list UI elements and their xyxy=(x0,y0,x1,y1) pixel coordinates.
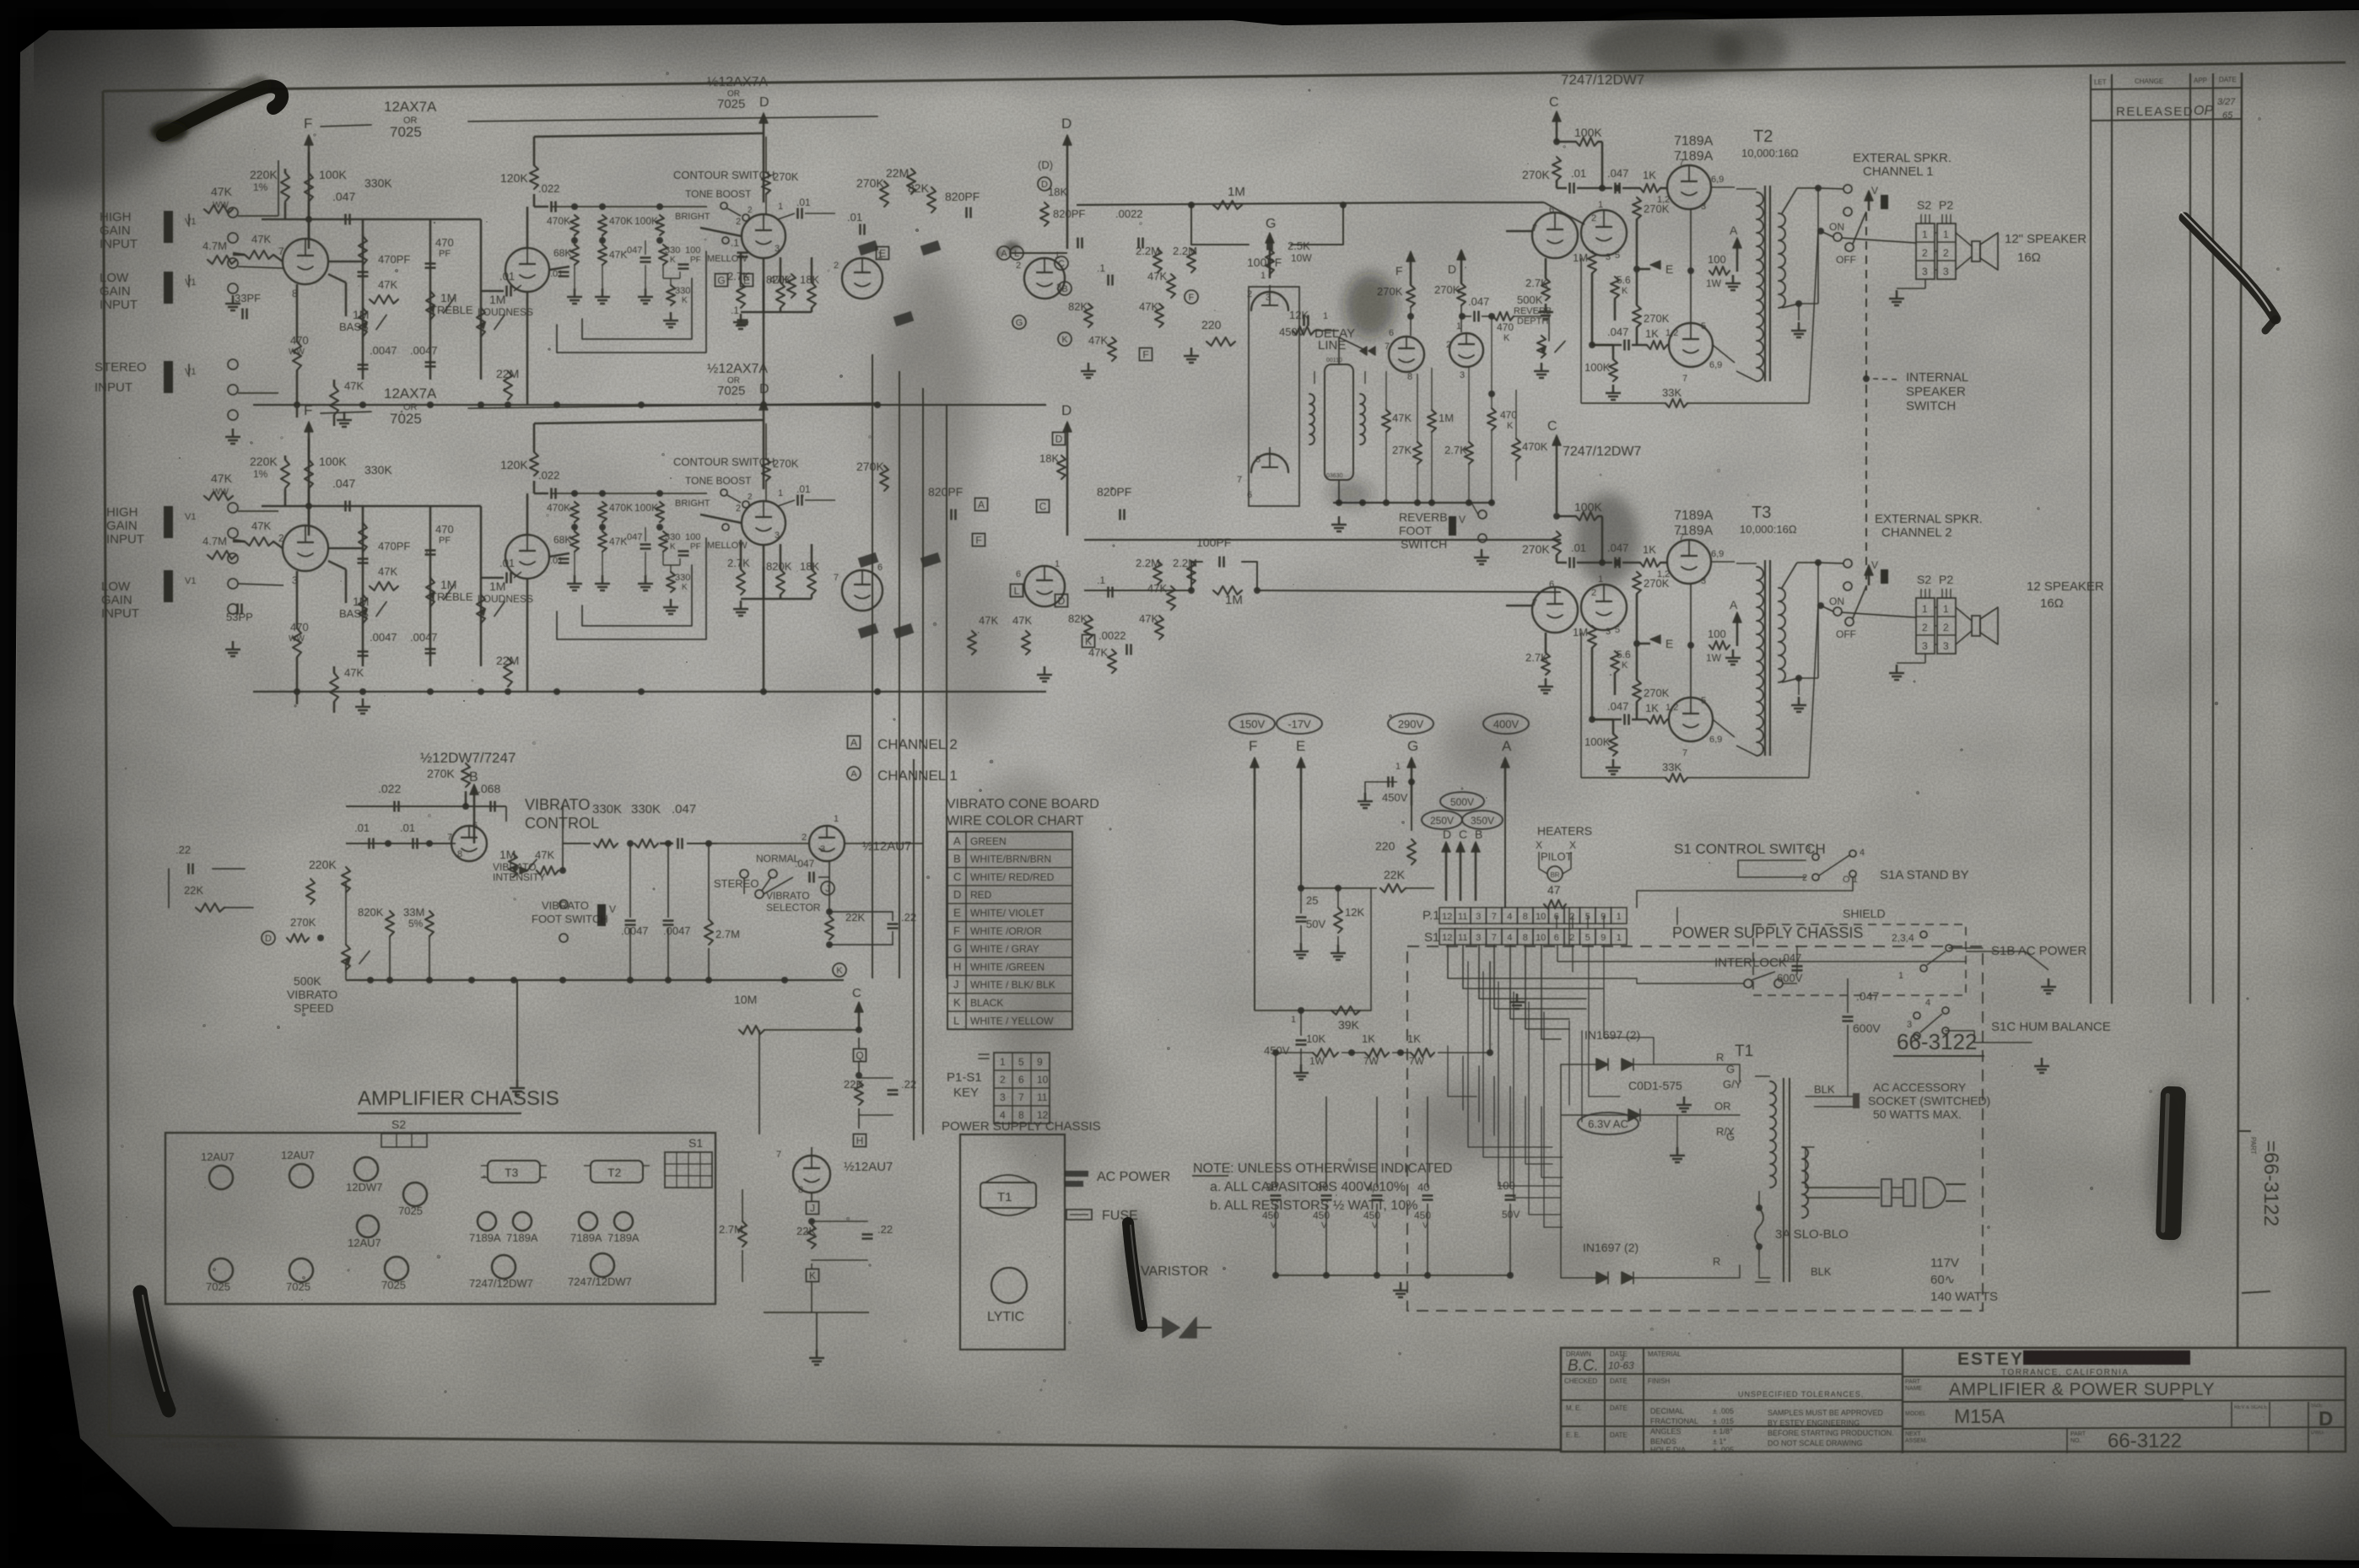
svg-text:2: 2 xyxy=(736,504,741,514)
svg-text:GAIN: GAIN xyxy=(100,284,131,299)
svg-text:PART: PART xyxy=(2070,1431,2086,1437)
svg-text:LOW: LOW xyxy=(100,271,129,285)
svg-text:7247/12DW7: 7247/12DW7 xyxy=(568,1275,632,1288)
svg-text:270K: 270K xyxy=(1522,542,1550,556)
svg-text:150V: 150V xyxy=(1239,718,1266,730)
svg-text:.047: .047 xyxy=(795,858,815,870)
svg-text:APP: APP xyxy=(2194,77,2207,84)
svg-text:PF: PF xyxy=(690,256,701,265)
svg-text:820PF: 820PF xyxy=(1053,207,1085,220)
svg-text:47K: 47K xyxy=(211,185,233,198)
svg-text:OR: OR xyxy=(1714,1100,1731,1113)
svg-text:1: 1 xyxy=(778,202,783,212)
svg-text:GAIN: GAIN xyxy=(106,519,138,533)
svg-text:F: F xyxy=(1142,349,1148,361)
svg-text:T3: T3 xyxy=(505,1166,519,1179)
svg-text:2: 2 xyxy=(1016,261,1021,271)
svg-text:± .005: ± .005 xyxy=(1713,1446,1734,1454)
svg-text:HIGH: HIGH xyxy=(106,505,138,520)
svg-text:V: V xyxy=(1459,514,1466,525)
svg-text:3: 3 xyxy=(1907,1020,1912,1030)
svg-text:.22: .22 xyxy=(175,843,191,856)
svg-text:100K: 100K xyxy=(1574,500,1602,514)
svg-text:12AU7: 12AU7 xyxy=(348,1237,381,1249)
svg-text:100K: 100K xyxy=(1584,736,1611,748)
svg-text:7025: 7025 xyxy=(381,1279,406,1291)
svg-text:(D): (D) xyxy=(1038,159,1053,171)
svg-text:100: 100 xyxy=(685,532,700,542)
svg-text:22M: 22M xyxy=(886,166,909,180)
svg-text:FOOT: FOOT xyxy=(1399,524,1432,537)
svg-text:D: D xyxy=(759,95,769,110)
svg-text:820PF: 820PF xyxy=(1097,485,1131,498)
svg-text:25: 25 xyxy=(1306,894,1318,907)
svg-text:B: B xyxy=(1061,284,1067,294)
svg-text:2: 2 xyxy=(736,217,741,227)
svg-text:1K: 1K xyxy=(1407,1032,1421,1045)
svg-text:T2: T2 xyxy=(1753,127,1773,146)
svg-text:100K: 100K xyxy=(319,455,347,468)
svg-text:.047: .047 xyxy=(1607,326,1628,338)
svg-text:PF: PF xyxy=(690,542,701,552)
svg-text:1W: 1W xyxy=(1706,277,1722,289)
svg-text:S2: S2 xyxy=(1917,573,1931,586)
svg-text:ESTEY: ESTEY xyxy=(1957,1350,2024,1369)
svg-text:10K: 10K xyxy=(1306,1032,1325,1045)
svg-text:L: L xyxy=(1014,585,1020,597)
svg-text:12K: 12K xyxy=(1345,906,1364,919)
svg-text:.1: .1 xyxy=(731,237,739,249)
svg-text:O 1: O 1 xyxy=(1843,875,1858,885)
svg-text:18K: 18K xyxy=(1039,452,1059,465)
svg-text:SELECTOR: SELECTOR xyxy=(766,902,821,913)
svg-text:H: H xyxy=(856,1135,864,1147)
svg-text:± 1°: ± 1° xyxy=(1713,1437,1726,1446)
svg-text:3: 3 xyxy=(1620,1354,1624,1362)
svg-text:T1: T1 xyxy=(997,1190,1012,1204)
svg-text:330K: 330K xyxy=(364,463,392,477)
svg-text:2.5K: 2.5K xyxy=(1287,240,1310,252)
svg-text:220: 220 xyxy=(1201,318,1222,331)
svg-text:POWER SUPPLY CHASSIS: POWER SUPPLY CHASSIS xyxy=(942,1119,1101,1134)
svg-text:CONTOUR SWITCH: CONTOUR SWITCH xyxy=(673,169,775,181)
svg-text:220K: 220K xyxy=(250,455,278,468)
svg-text:C: C xyxy=(953,870,961,883)
svg-text:3: 3 xyxy=(1606,252,1611,262)
svg-text:1: 1 xyxy=(1922,603,1928,615)
svg-text:STEREO: STEREO xyxy=(94,360,147,374)
svg-text:7: 7 xyxy=(1532,598,1537,608)
svg-text:3: 3 xyxy=(1000,1091,1006,1103)
svg-text:600V: 600V xyxy=(1853,1021,1881,1035)
svg-text:G: G xyxy=(1266,217,1276,231)
svg-text:F: F xyxy=(975,535,981,547)
svg-text:12" SPEAKER: 12" SPEAKER xyxy=(2005,232,2086,246)
svg-text:K: K xyxy=(1622,660,1628,671)
svg-text:7: 7 xyxy=(776,1150,781,1160)
svg-text:2: 2 xyxy=(748,493,753,502)
svg-text:10W: 10W xyxy=(1291,252,1312,264)
svg-text:R: R xyxy=(1716,1051,1724,1064)
svg-text:100: 100 xyxy=(685,245,700,256)
svg-text:9: 9 xyxy=(1601,933,1606,943)
svg-text:CONTROL: CONTROL xyxy=(525,815,599,832)
svg-text:K: K xyxy=(1503,333,1510,343)
svg-text:B: B xyxy=(953,853,961,865)
svg-text:B: B xyxy=(1475,827,1482,841)
svg-text:40: 40 xyxy=(1417,1181,1429,1194)
svg-text:11: 11 xyxy=(1037,1091,1048,1103)
svg-text:D: D xyxy=(759,382,769,396)
svg-text:68K: 68K xyxy=(553,534,571,546)
svg-text:6,9: 6,9 xyxy=(1711,175,1724,185)
svg-text:47K: 47K xyxy=(1088,334,1108,347)
svg-text:.047: .047 xyxy=(332,190,355,203)
svg-text:12AX7A: 12AX7A xyxy=(384,99,437,115)
svg-text:.1: .1 xyxy=(1097,262,1105,274)
svg-text:S2: S2 xyxy=(1917,198,1931,212)
svg-text:BLK: BLK xyxy=(1814,1083,1835,1096)
svg-text:V1: V1 xyxy=(185,512,196,522)
svg-text:1: 1 xyxy=(1898,971,1903,981)
svg-text:V1: V1 xyxy=(185,217,196,227)
svg-text:SAMPLES MUST BE APPROVED: SAMPLES MUST BE APPROVED xyxy=(1768,1409,1883,1417)
svg-text:GAIN: GAIN xyxy=(101,593,132,607)
svg-text:.047: .047 xyxy=(624,532,642,542)
svg-text:WHITE / YELLOW: WHITE / YELLOW xyxy=(970,1015,1054,1026)
svg-text:39K: 39K xyxy=(1338,1018,1360,1032)
svg-text:S2: S2 xyxy=(391,1118,406,1131)
svg-text:470PF: 470PF xyxy=(378,540,410,552)
svg-text:IN1697 (2): IN1697 (2) xyxy=(1584,1028,1640,1042)
svg-text:7025: 7025 xyxy=(390,411,422,427)
svg-text:OFF: OFF xyxy=(1836,628,1856,640)
svg-text:7: 7 xyxy=(1532,224,1537,234)
svg-text:WIRE COLOR CHART: WIRE COLOR CHART xyxy=(947,814,1084,828)
svg-text:AC POWER: AC POWER xyxy=(1097,1170,1170,1184)
svg-text:DATE: DATE xyxy=(2219,76,2237,84)
svg-text:2: 2 xyxy=(834,261,839,271)
svg-text:100K: 100K xyxy=(319,168,347,181)
svg-text:NOTE: NOTE xyxy=(1193,1161,1230,1176)
svg-text:7: 7 xyxy=(1492,933,1497,943)
svg-text:18K: 18K xyxy=(800,560,819,573)
svg-text:a. ALL CAPASITORS 400V, 10%: a. ALL CAPASITORS 400V, 10% xyxy=(1210,1180,1406,1194)
svg-text:NO.: NO. xyxy=(2070,1438,2081,1444)
svg-text:.047: .047 xyxy=(1607,700,1628,713)
svg-text:470: 470 xyxy=(435,236,454,249)
svg-text:AMPLIFIER CHASSIS: AMPLIFIER CHASSIS xyxy=(358,1087,559,1110)
svg-text:270K: 270K xyxy=(856,176,884,190)
svg-text:TORRANCE, CALIFORNIA: TORRANCE, CALIFORNIA xyxy=(2001,1368,2130,1377)
svg-text:3: 3 xyxy=(775,531,780,541)
svg-text:TREBLE: TREBLE xyxy=(430,304,473,316)
svg-text:1,2: 1,2 xyxy=(1665,328,1678,338)
svg-text:LOUDNESS: LOUDNESS xyxy=(478,593,533,605)
svg-text:3: 3 xyxy=(1460,370,1465,380)
svg-text:VIBRATO: VIBRATO xyxy=(766,890,810,902)
svg-text:C: C xyxy=(1459,827,1467,841)
svg-text:IN1697 (2): IN1697 (2) xyxy=(1583,1241,1638,1254)
svg-text:6,9: 6,9 xyxy=(1709,735,1722,745)
svg-text:DATE: DATE xyxy=(1610,1431,1628,1439)
svg-text:K: K xyxy=(953,996,961,1009)
svg-text:10,000:16Ω: 10,000:16Ω xyxy=(1741,147,1799,159)
svg-text:WHITE /GREEN: WHITE /GREEN xyxy=(970,961,1045,973)
svg-text:SOCKET (SWITCHED): SOCKET (SWITCHED) xyxy=(1868,1094,1990,1107)
svg-text:T1: T1 xyxy=(1735,1043,1753,1060)
svg-text:1%: 1% xyxy=(253,468,268,480)
svg-text:G: G xyxy=(953,942,962,955)
svg-text:8: 8 xyxy=(457,849,462,859)
svg-text:K: K xyxy=(682,296,688,305)
svg-text:2.7K: 2.7K xyxy=(727,557,750,569)
svg-text:270K: 270K xyxy=(1644,687,1670,699)
svg-text:7247/12DW7: 7247/12DW7 xyxy=(1563,445,1641,459)
svg-text:6: 6 xyxy=(1549,205,1554,215)
svg-text:.047: .047 xyxy=(672,802,696,816)
svg-text:500K: 500K xyxy=(294,974,321,988)
svg-text:2: 2 xyxy=(802,832,807,843)
svg-text:DIETZGEN 14DH DURAVEL: DIETZGEN 14DH DURAVEL xyxy=(162,1443,238,1449)
svg-text:.047: .047 xyxy=(332,477,355,490)
svg-text:.022: .022 xyxy=(538,182,559,195)
svg-text:B.C.: B.C. xyxy=(1568,1357,1599,1375)
svg-text:SWITCH: SWITCH xyxy=(1401,537,1447,551)
svg-text:SPEED: SPEED xyxy=(294,1001,333,1015)
svg-text:00110: 00110 xyxy=(1326,358,1342,364)
svg-text:PF: PF xyxy=(439,536,451,546)
svg-text:.0047: .0047 xyxy=(370,631,397,644)
svg-text:117V: 117V xyxy=(1930,1256,1959,1270)
svg-text:4: 4 xyxy=(1860,848,1865,858)
svg-text:.01: .01 xyxy=(847,211,862,224)
svg-text:EXTERNAL SPKR.: EXTERNAL SPKR. xyxy=(1875,512,1983,526)
svg-text:FINISH: FINISH xyxy=(1648,1377,1670,1385)
svg-text:EXTERAL SPKR.: EXTERAL SPKR. xyxy=(1853,151,1951,165)
svg-text:1,2: 1,2 xyxy=(1665,703,1678,713)
svg-text:± .005: ± .005 xyxy=(1713,1407,1734,1415)
svg-text:120K: 120K xyxy=(500,458,528,471)
svg-text:7189A: 7189A xyxy=(1674,149,1714,164)
svg-text:22K: 22K xyxy=(845,911,865,924)
svg-text:22K: 22K xyxy=(184,884,203,897)
svg-text:3: 3 xyxy=(1943,640,1949,652)
svg-text:± 1/8°: ± 1/8° xyxy=(1713,1427,1733,1436)
svg-text:2: 2 xyxy=(1802,873,1807,883)
svg-text:V1: V1 xyxy=(185,367,196,377)
svg-text:6: 6 xyxy=(1549,579,1554,590)
svg-text:GREEN: GREEN xyxy=(970,835,1007,847)
svg-text:± .015: ± .015 xyxy=(1713,1417,1734,1425)
svg-text:270K: 270K xyxy=(773,457,799,470)
svg-text:.0047: .0047 xyxy=(663,924,691,937)
svg-text:E: E xyxy=(1665,262,1673,276)
svg-text:500V: 500V xyxy=(1450,796,1474,808)
svg-text:1M: 1M xyxy=(489,293,505,306)
svg-text:6: 6 xyxy=(472,821,478,831)
svg-text:BEFORE STARTING PRODUCTION.: BEFORE STARTING PRODUCTION. xyxy=(1768,1429,1894,1437)
svg-text:47K: 47K xyxy=(378,278,397,291)
svg-text:1K: 1K xyxy=(1362,1032,1375,1045)
svg-text:½12AU7: ½12AU7 xyxy=(844,1160,893,1174)
svg-text:C: C xyxy=(1039,501,1047,513)
svg-text:.22: .22 xyxy=(901,911,916,924)
svg-text:.022: .022 xyxy=(378,782,401,795)
svg-text:VIBRATO: VIBRATO xyxy=(525,796,590,813)
svg-text:470K: 470K xyxy=(1522,440,1548,453)
svg-text:G: G xyxy=(1016,318,1023,328)
svg-text:270K: 270K xyxy=(856,460,884,473)
svg-text:1: 1 xyxy=(1055,559,1060,569)
svg-text:400V: 400V xyxy=(1493,718,1520,730)
svg-text:03630: 03630 xyxy=(1326,473,1343,479)
svg-text:1: 1 xyxy=(1395,762,1401,772)
svg-text:100K: 100K xyxy=(634,215,658,227)
svg-text:2: 2 xyxy=(1922,622,1928,633)
svg-text:P1-S1: P1-S1 xyxy=(947,1070,982,1085)
svg-text:BY ESTEY ENGINEERING: BY ESTEY ENGINEERING xyxy=(1768,1419,1860,1427)
svg-text:47K: 47K xyxy=(344,666,364,679)
svg-text:K: K xyxy=(836,966,843,976)
svg-text:F: F xyxy=(1249,738,1257,754)
svg-text:6.3V AC: 6.3V AC xyxy=(1588,1118,1628,1130)
svg-text:TREBLE: TREBLE xyxy=(430,590,473,603)
svg-text:1M: 1M xyxy=(1573,251,1588,264)
svg-text:5: 5 xyxy=(1615,625,1620,635)
svg-text:A: A xyxy=(850,737,857,749)
svg-text:2,3,4: 2,3,4 xyxy=(1892,932,1914,944)
svg-text:INTERNAL: INTERNAL xyxy=(1906,370,1968,385)
svg-text:MATERIAL: MATERIAL xyxy=(1648,1350,1682,1358)
svg-text:1K: 1K xyxy=(1643,543,1656,556)
svg-text:.047: .047 xyxy=(1856,989,1879,1003)
svg-text:470K: 470K xyxy=(609,215,633,227)
svg-text:3A SLO-BLO: 3A SLO-BLO xyxy=(1775,1227,1849,1242)
svg-text:INPUT: INPUT xyxy=(101,606,139,621)
svg-text:2: 2 xyxy=(278,532,284,544)
svg-text:12AU7: 12AU7 xyxy=(201,1150,235,1163)
svg-text:270K: 270K xyxy=(1644,577,1670,590)
svg-text:V: V xyxy=(1871,185,1878,197)
svg-text:470: 470 xyxy=(1497,321,1514,333)
svg-text:1W: 1W xyxy=(1706,652,1722,664)
svg-text:.01: .01 xyxy=(354,822,370,834)
svg-text:DWG.: DWG. xyxy=(2311,1431,2325,1436)
svg-text:-17V: -17V xyxy=(1287,718,1311,730)
svg-text:470: 470 xyxy=(1500,409,1517,421)
svg-text:C0D1-575: C0D1-575 xyxy=(1628,1079,1682,1092)
svg-text:7025: 7025 xyxy=(206,1280,230,1293)
svg-text:820K: 820K xyxy=(358,906,384,919)
svg-text:270K: 270K xyxy=(773,170,799,183)
svg-text:DATE: DATE xyxy=(1610,1404,1628,1412)
svg-text:REV & SCALE: REV & SCALE xyxy=(2234,1405,2267,1410)
svg-text:LOUDNESS: LOUDNESS xyxy=(478,306,533,318)
svg-text:8: 8 xyxy=(1255,455,1260,465)
svg-text:.047: .047 xyxy=(1607,167,1628,180)
svg-text:6: 6 xyxy=(1554,933,1559,943)
svg-text:220: 220 xyxy=(1375,839,1395,853)
svg-text:ASSEM.: ASSEM. xyxy=(1905,1438,1928,1444)
svg-text:600V: 600V xyxy=(1777,972,1803,984)
svg-text:BLACK: BLACK xyxy=(970,997,1003,1009)
svg-text:100: 100 xyxy=(1708,628,1726,640)
svg-text:WHITE /OR/OR: WHITE /OR/OR xyxy=(970,925,1042,937)
svg-text:1: 1 xyxy=(1456,321,1461,331)
svg-text:POWER SUPPLY CHASSIS: POWER SUPPLY CHASSIS xyxy=(1672,924,1863,941)
svg-text:3: 3 xyxy=(1266,293,1271,303)
svg-text:66-3122: 66-3122 xyxy=(2108,1430,2182,1452)
svg-text:68K: 68K xyxy=(553,247,571,259)
svg-text:1: 1 xyxy=(1323,311,1328,321)
svg-text:.047: .047 xyxy=(1607,542,1628,554)
svg-text:A: A xyxy=(850,769,857,779)
svg-text:6: 6 xyxy=(877,563,883,573)
svg-text:.01: .01 xyxy=(796,197,811,208)
svg-text:D: D xyxy=(953,888,961,901)
svg-text:11: 11 xyxy=(1458,912,1467,922)
svg-text:VIBRATO CONE BOARD: VIBRATO CONE BOARD xyxy=(947,797,1099,811)
svg-text:9: 9 xyxy=(1037,1056,1043,1068)
svg-text:220K: 220K xyxy=(309,858,337,871)
svg-text:M15A: M15A xyxy=(1954,1405,2005,1427)
svg-text:9: 9 xyxy=(1601,912,1606,922)
svg-text:INPUT: INPUT xyxy=(100,298,138,312)
svg-text:47K: 47K xyxy=(378,565,397,578)
svg-text:CHANNEL 1: CHANNEL 1 xyxy=(877,768,958,784)
svg-text:12AU7: 12AU7 xyxy=(281,1149,315,1161)
svg-text:V: V xyxy=(1871,559,1878,571)
svg-text:7189A: 7189A xyxy=(469,1231,501,1244)
svg-text:2: 2 xyxy=(1247,289,1252,299)
svg-text:BR: BR xyxy=(1550,871,1559,879)
svg-text:330K: 330K xyxy=(631,802,661,816)
svg-text:12: 12 xyxy=(1442,912,1452,922)
svg-text:7189A: 7189A xyxy=(1674,524,1714,538)
svg-text:E: E xyxy=(953,907,961,919)
svg-text:47K: 47K xyxy=(251,233,271,245)
svg-text:A: A xyxy=(978,499,985,511)
svg-text:330K: 330K xyxy=(364,176,392,190)
svg-text:1%: 1% xyxy=(253,181,268,193)
svg-text:OFF: OFF xyxy=(1836,254,1856,266)
svg-text:.047: .047 xyxy=(624,245,642,256)
svg-text:100PF: 100PF xyxy=(1196,536,1231,549)
svg-text:D: D xyxy=(1055,434,1063,445)
svg-text:3: 3 xyxy=(1943,266,1949,277)
svg-text:K: K xyxy=(670,256,676,265)
svg-text:X: X xyxy=(1569,839,1576,851)
svg-text:CHANNEL 1: CHANNEL 1 xyxy=(1863,164,1934,179)
svg-text:1: 1 xyxy=(877,251,883,261)
svg-text:.047: .047 xyxy=(1468,295,1489,308)
svg-text:S1C HUM BALANCE: S1C HUM BALANCE xyxy=(1991,1020,2111,1034)
svg-text:1: 1 xyxy=(1598,200,1603,210)
svg-text:2: 2 xyxy=(1569,912,1574,922)
svg-text:470K: 470K xyxy=(547,502,570,514)
svg-text:250V: 250V xyxy=(1430,815,1454,827)
svg-text:22K: 22K xyxy=(844,1078,863,1091)
svg-text:8: 8 xyxy=(798,1185,803,1195)
svg-text:3: 3 xyxy=(775,244,780,254)
svg-text:INTERLOCK: INTERLOCK xyxy=(1714,956,1787,970)
svg-text:P.1: P.1 xyxy=(1422,908,1440,923)
svg-text:E. E.: E. E. xyxy=(1566,1431,1580,1439)
svg-text:270K: 270K xyxy=(1644,202,1670,215)
svg-text:7025: 7025 xyxy=(398,1204,423,1217)
svg-text:MODEL: MODEL xyxy=(1905,1411,1926,1417)
